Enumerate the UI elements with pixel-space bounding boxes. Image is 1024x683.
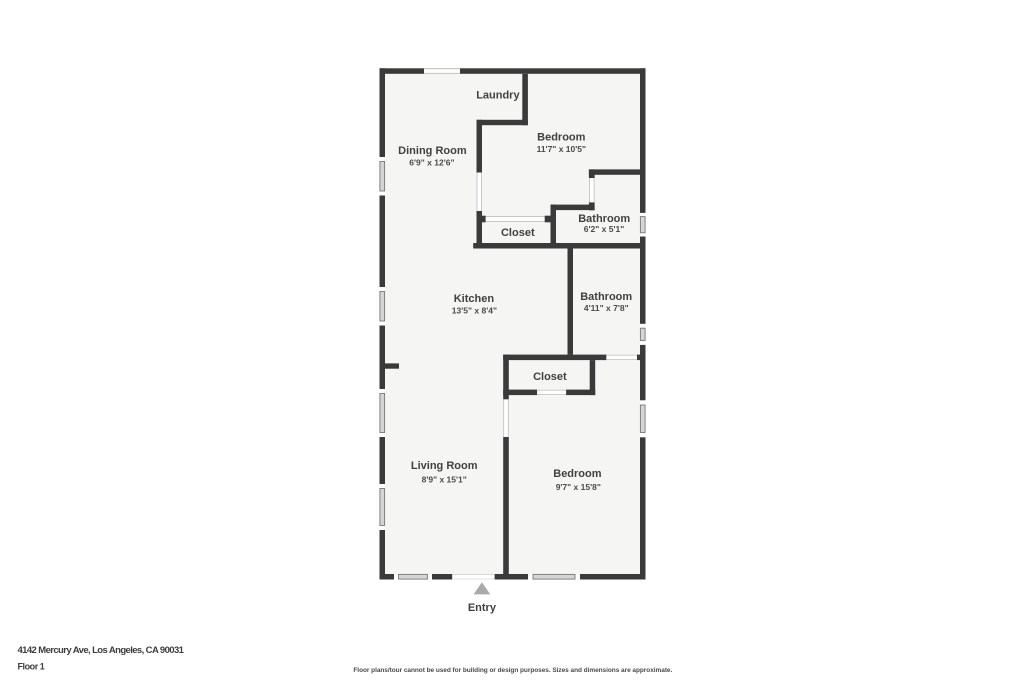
svg-text:9'7" x 15'8": 9'7" x 15'8" [556,482,601,492]
svg-text:Dining Room: Dining Room [398,145,467,157]
svg-text:Entry: Entry [468,602,497,614]
svg-text:6'9" x 12'6": 6'9" x 12'6" [409,157,454,167]
svg-text:11'7" x 10'5": 11'7" x 10'5" [537,144,586,154]
svg-text:13'5" x 8'4": 13'5" x 8'4" [452,306,497,316]
svg-text:6'2" x 5'1": 6'2" x 5'1" [584,224,624,234]
svg-text:4142 Mercury Ave, Los Angeles,: 4142 Mercury Ave, Los Angeles, CA 90031 [18,645,185,656]
svg-text:Floor 1: Floor 1 [18,661,45,671]
svg-text:8'9" x 15'1": 8'9" x 15'1" [422,475,467,485]
svg-text:Bathroom: Bathroom [580,291,632,303]
svg-text:Kitchen: Kitchen [454,293,495,305]
svg-text:Closet: Closet [533,371,567,383]
svg-text:Laundry: Laundry [476,90,520,102]
svg-text:Floor plans/tour cannot be use: Floor plans/tour cannot be used for buil… [353,667,672,674]
svg-text:Bedroom: Bedroom [537,132,586,144]
svg-text:Living Room: Living Room [411,460,478,472]
svg-text:Closet: Closet [501,227,535,239]
svg-text:Bedroom: Bedroom [553,468,602,480]
svg-text:Bathroom: Bathroom [578,213,630,225]
svg-text:4'11" x 7'8": 4'11" x 7'8" [584,303,629,313]
